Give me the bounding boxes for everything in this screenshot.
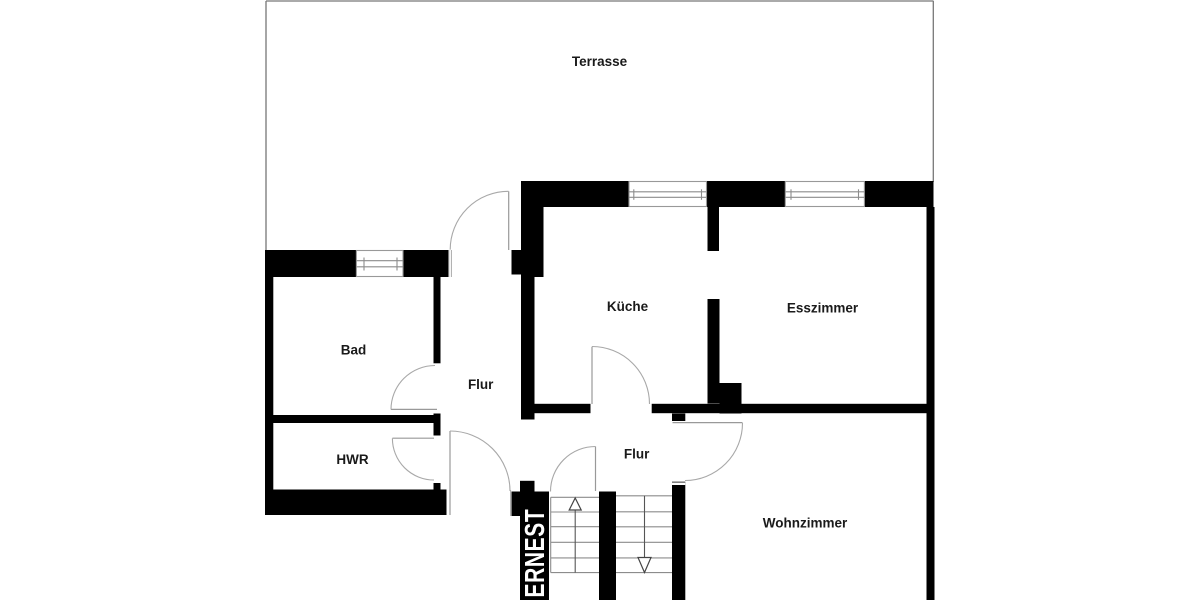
svg-text:Flur: Flur	[468, 377, 494, 392]
svg-text:Terrasse: Terrasse	[572, 54, 628, 69]
svg-text:Esszimmer: Esszimmer	[787, 301, 859, 316]
svg-text:HWR: HWR	[336, 452, 368, 467]
svg-text:Bad: Bad	[341, 343, 367, 358]
svg-text:Flur: Flur	[624, 447, 650, 462]
svg-text:ERNEST: ERNEST	[521, 509, 551, 598]
svg-text:Wohnzimmer: Wohnzimmer	[763, 515, 848, 530]
svg-text:Küche: Küche	[607, 299, 649, 314]
